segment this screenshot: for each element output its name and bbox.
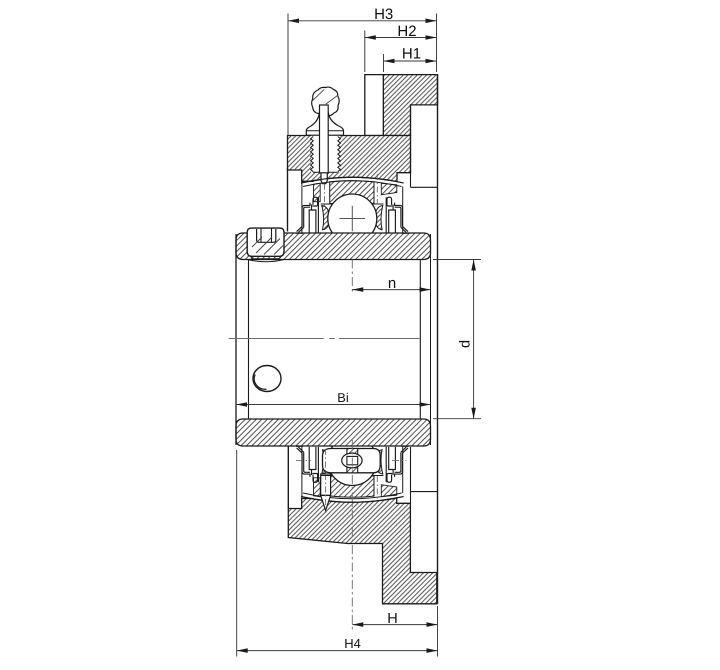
svg-text:H4: H4 [344, 636, 361, 651]
svg-text:H1: H1 [402, 46, 421, 63]
svg-text:H: H [387, 611, 397, 627]
svg-text:n: n [388, 275, 396, 292]
svg-text:H2: H2 [397, 23, 416, 40]
svg-text:d: d [458, 340, 474, 348]
svg-text:H3: H3 [374, 6, 393, 23]
svg-text:Bi: Bi [337, 390, 348, 405]
